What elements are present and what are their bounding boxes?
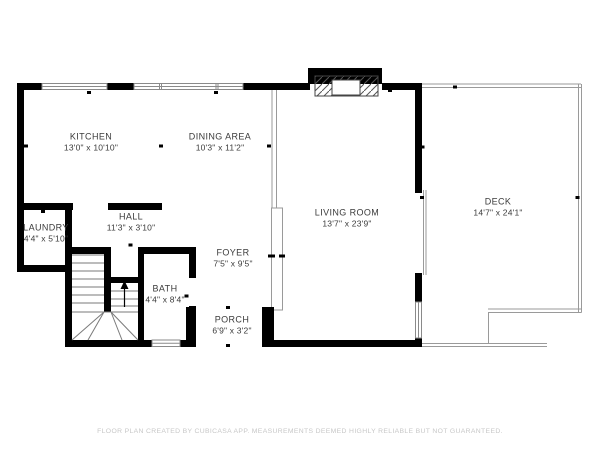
room-dimensions: 13'7" x 23'9" [315, 218, 379, 228]
room-dimensions: 7'5" x 9'5" [213, 258, 252, 268]
room-name: DINING AREA [189, 132, 251, 143]
room-label-hall: HALL 11'3" x 3'10" [107, 212, 156, 233]
room-label-laundry: LAUNDRY 4'4" x 5'10" [23, 223, 69, 244]
room-dimensions: 14'7" x 24'1" [473, 207, 522, 217]
room-label-porch: PORCH 6'9" x 3'2" [212, 315, 251, 336]
room-name: BATH [145, 284, 184, 295]
floor-plan-canvas: KITCHEN 13'0" x 10'10" DINING AREA 10'3"… [0, 0, 600, 450]
room-name: KITCHEN [64, 132, 118, 143]
room-dimensions: 4'4" x 8'4" [145, 294, 184, 304]
room-dimensions: 10'3" x 11'2" [189, 142, 251, 152]
room-dimensions: 6'9" x 3'2" [212, 325, 251, 335]
room-name: FOYER [213, 248, 252, 259]
room-name: LAUNDRY [23, 223, 69, 234]
room-label-bath: BATH 4'4" x 8'4" [145, 284, 184, 305]
room-dimensions: 11'3" x 3'10" [107, 222, 156, 232]
firebox [332, 80, 360, 95]
room-dimensions: 4'4" x 5'10" [23, 233, 69, 243]
room-label-dining-area: DINING AREA 10'3" x 11'2" [189, 132, 251, 153]
room-name: PORCH [212, 315, 251, 326]
room-label-deck: DECK 14'7" x 24'1" [473, 197, 522, 218]
room-dimensions: 13'0" x 10'10" [64, 142, 118, 152]
room-name: DECK [473, 197, 522, 208]
floor-plan-drawing [0, 0, 600, 450]
room-label-kitchen: KITCHEN 13'0" x 10'10" [64, 132, 118, 153]
stairs-direction-arrow [121, 281, 129, 308]
foyer-living-partition [272, 208, 283, 310]
room-name: LIVING ROOM [315, 208, 379, 219]
dining-living-divider [268, 90, 285, 310]
fireplace [308, 68, 382, 96]
disclaimer-text: FLOOR PLAN CREATED BY CUBICASA APP. MEAS… [0, 428, 600, 435]
room-name: HALL [107, 212, 156, 223]
room-label-foyer: FOYER 7'5" x 9'5" [213, 248, 252, 269]
room-label-living-room: LIVING ROOM 13'7" x 23'9" [315, 208, 379, 229]
